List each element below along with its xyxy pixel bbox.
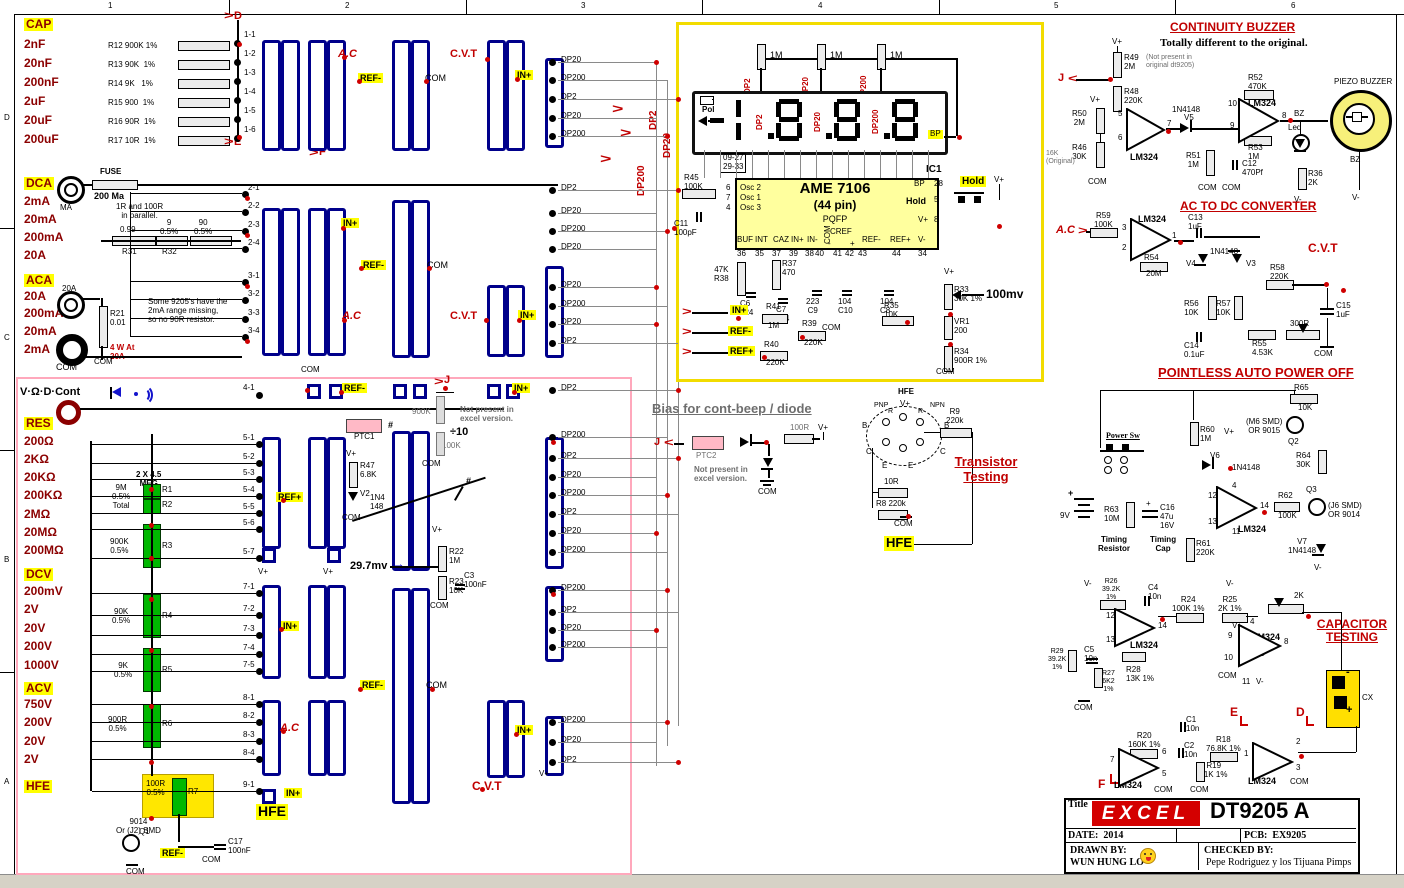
resistor-r7 [172,778,187,816]
sq-84 [262,789,276,804]
cp-231 [1074,498,1094,500]
lcd-segment [855,102,860,117]
disp-botn-2: 37 [772,250,781,259]
rv-175 [1096,108,1105,134]
ruler-col-3: 3 [581,2,585,11]
junction-dot [279,627,284,632]
mid-ptc1: PTC1 [354,433,374,442]
mid-t5-0: 5-1 [243,434,255,443]
disp-botn-8: 43 [858,250,867,259]
terminal-dot [242,246,249,253]
rv-182 [1206,150,1215,176]
cpv-212 [1200,332,1202,342]
tb-checked_name: Pepe Rodriguez y los Tijuana Pimps [1206,857,1351,868]
dp-terminal-dot [549,609,556,616]
cap-rs-0: R12 900K 1% [108,42,157,51]
dp-terminal-label: DP2 [561,756,577,765]
dp-wire [558,495,667,496]
trd-215 [1298,324,1308,333]
l1h-163 [924,432,940,433]
sq-60 [393,384,407,399]
lh-21 [101,240,241,242]
l1v-1 [466,0,467,14]
dp-terminal-dot [549,321,556,328]
lcd-segment [834,123,839,138]
cb-r53: R53 1M [1248,144,1263,162]
terminal-dot [256,510,263,517]
junction-dot [149,556,154,561]
dp-terminal-dot [549,511,556,518]
lcd-segment [895,117,915,122]
ct-p8: 8 [1284,638,1288,647]
l1v-177 [1100,134,1101,142]
disp-osc-1: 7 [726,194,730,203]
cb-r49n: (Not present in original dt9205) [1146,54,1194,70]
dp-terminal-label: DP20 [561,318,581,327]
dp-terminal-label: DP2 [561,384,577,393]
sym-gt: > [682,306,692,318]
ring-159 [882,438,890,446]
lh-115 [954,192,984,194]
lcd-segment [837,136,857,141]
lcd-segment [913,102,918,117]
common-com: COM [936,368,955,377]
ring-228 [1120,456,1128,464]
disp-r40: R40 [764,341,779,350]
dp-wire [558,742,656,743]
dp-terminal-label: DP20 [561,736,581,745]
tb-title: Title [1068,799,1088,810]
rh-12 [178,117,230,127]
dp-wire [558,213,656,214]
common-com: COM [202,856,221,865]
trd-148 [763,458,773,467]
section-dca: DCA [24,177,54,190]
lcd-pin-lead [880,150,881,178]
wire [92,704,256,705]
dca-rg-1: 20mA [24,213,57,226]
junction-dot [1306,614,1311,619]
ac-dc-title: AC TO DC CONVERTER [1180,200,1316,213]
mid-c3: C3 100nF [464,572,487,590]
disp-c10: 104 C10 [838,298,853,316]
mid-t7-3: 7-4 [243,644,255,653]
ring-227 [1104,456,1112,464]
l1v-286 [1198,842,1199,870]
l1h-221 [1100,390,1296,391]
dca-fv: 200 Ma [94,191,124,201]
bar-65 [308,437,327,549]
cpv-272 [1184,722,1186,732]
lcd-segment [884,133,890,139]
common-com: COM [1222,184,1241,193]
section-acv: ACV [24,682,53,695]
ct-r24: R24 100K 1% [1172,596,1204,614]
rv-210 [1234,296,1243,320]
bar-56 [506,285,525,357]
cap-rs-3: R15 900 1% [108,99,154,108]
tt-r10: 10R [884,478,899,487]
wire [92,791,256,792]
rv-22 [99,306,108,348]
lv-150 [768,470,770,478]
junction-dot [676,188,681,193]
junction-dot [515,77,520,82]
dp-wire [558,306,667,307]
disp-bot-5: CREF [830,228,852,237]
dp-wire [558,99,678,100]
terminal-dot [242,297,249,304]
common-com: COM [126,868,145,877]
apo-r65: R65 [1294,384,1309,393]
ladder-q1: Q1 [139,828,150,837]
terminal-dot [256,788,263,795]
l1h-278 [1302,612,1342,613]
l1v-285 [1240,828,1241,842]
dp-terminal-dot [549,549,556,556]
ring-161 [916,438,924,446]
cb-r48: R48 220K [1124,88,1143,106]
cp-206 [1228,250,1240,252]
transistor-q2 [1286,416,1304,434]
junction-dot [237,42,242,47]
dp-wire [558,287,656,288]
lv-33 [151,434,153,776]
cp-204 [1194,264,1206,266]
common-com: COM [1088,178,1107,187]
junction-dot [665,720,670,725]
aca-rg-2: 20mA [24,325,57,338]
l1v-280 [1356,726,1357,752]
dp-wire [558,630,656,631]
auto-power-off-title: POINTLESS AUTO POWER OFF [1158,366,1354,381]
apo-q2: Q2 [1288,438,1299,447]
jack-ma [57,176,85,204]
disp-pqfp: PQFP [800,214,870,224]
lcd-segment [736,123,741,140]
bar-82 [308,700,327,776]
dp-terminal-dot [549,210,556,217]
sym-gt: > [620,126,631,141]
ct-p10: 10 [1224,654,1233,663]
cp-260 [1078,700,1090,702]
bar-44 [392,40,411,151]
rh-168 [878,488,908,498]
ad-r56: R56 10K [1184,300,1199,318]
dp-wire [558,590,667,591]
junction-dot [245,233,250,238]
ct-p3: 3 [1296,764,1300,773]
common-inp: IN+ [730,305,748,315]
trl-135 [952,290,961,300]
transistor-q1 [122,834,140,852]
section-aca: ACA [24,274,54,287]
common-cvt: C.V.T [450,310,477,322]
rv-238 [1190,422,1199,446]
lv-24 [101,298,103,306]
junction-dot [149,487,154,492]
lcd-segment [892,123,897,138]
ct-e: E [1230,706,1238,719]
bar-72 [262,585,281,679]
dp-terminal-label: DP2 [561,337,577,346]
apo-r63: R63 10M [1104,506,1120,524]
lcd-pin-lead [816,150,817,178]
ruler-col-6: 6 [1291,2,1295,11]
lh-201 [1174,240,1194,242]
common-refm: REF- [361,260,386,270]
cb-r50: R50 2M [1072,110,1087,128]
rv-93 [438,576,447,600]
dp-terminal-label: DP2 [561,452,577,461]
junction-dot [665,134,670,139]
wire [92,722,256,723]
common-com: COM [758,488,777,497]
disp-r37: R37 470 [782,260,797,278]
hfe-jack-label: HFE [884,536,914,551]
terminal-dot [256,392,263,399]
junction-dot [676,456,681,461]
junction-dot [1262,510,1267,515]
cb-sub: Totally different to the original. [1160,37,1308,49]
continuity-buzzer-title: CONTINUITY BUZZER [1170,21,1295,34]
disp-botn-4: 38 [805,250,814,259]
ruler-row-c: C [4,334,10,343]
mid-mv: 29.7mv [350,560,387,572]
common-vm: V- [1084,580,1092,589]
wire [92,444,256,445]
lcd-segment [779,136,799,141]
ruler-col-2: 2 [345,2,349,11]
lh-143 [674,443,684,445]
lcd-dp-label: DP200 [872,110,881,134]
battery-icon [700,96,714,105]
terminal-dot [256,493,263,500]
hfe-socket-title: HFE [898,388,914,397]
lh-139 [692,332,728,334]
dp-terminal-dot [549,759,556,766]
cp-126 [812,294,822,296]
ptc2-body [692,436,724,450]
junction-dot [948,312,953,317]
rv-104 [877,44,886,70]
dcv-rg-4: 1000V [24,659,59,672]
dp-terminal-dot [549,739,556,746]
bar-81 [262,700,281,776]
ct-cx: CX [1362,694,1373,703]
tt-e: E [882,462,887,471]
winking-emoji [1140,848,1156,864]
res-rg-2: 20KΩ [24,471,56,484]
l1h-165 [912,544,972,545]
sq-71 [327,548,341,563]
dp-terminal-dot [549,187,556,194]
lv-101 [956,58,958,136]
dp-wire [558,390,678,391]
rv-242 [1186,538,1195,562]
dp-terminal-dot [549,474,556,481]
lh-202 [1204,236,1260,238]
wire [92,759,256,760]
disp-r41: R41 [766,303,781,312]
junction-dot [736,316,741,321]
trd-254 [1274,598,1284,607]
disp-botn-10: 34 [918,250,927,259]
cp-236 [1142,510,1158,512]
cp-232 [1078,504,1090,506]
junction-dot [1324,282,1329,287]
lvb-241 [1212,457,1214,469]
opamp-ic2b [1126,108,1166,152]
terminal-dot [256,555,263,562]
junction-dot [480,787,485,792]
junction-dot [357,79,362,84]
junction-dot [430,687,435,692]
dp-wire [558,136,667,137]
ad-r54v: 20M [1146,270,1162,279]
rv-120 [772,260,781,290]
sqb-226 [1122,444,1129,451]
ring-230 [1120,466,1128,474]
ct-p14: 14 [1158,622,1167,631]
cp-123 [778,298,788,300]
dp-terminal-label: DP200 [561,225,585,234]
disp-osc-0: 6 [726,184,730,193]
terminal-dot [234,59,241,66]
junction-dot [1166,129,1171,134]
cap-rs-4: R16 90R 1% [108,118,156,127]
rv-92 [438,546,447,572]
dp-terminal-dot [549,719,556,726]
l1h-281 [1298,752,1356,753]
rv-89 [349,462,358,488]
disp-p5: 5 [934,196,938,205]
dp-wire [558,762,678,763]
junction-dot [341,226,346,231]
wire [92,671,256,672]
junction-dot [245,339,250,344]
junction-dot [654,322,659,327]
lcd-pin-lead [864,150,865,178]
model-number: DT9205 A [1210,799,1309,824]
disp-botn-6: 41 [833,250,842,259]
lcd-pin-lead [912,150,913,178]
hold-switch-label: Hold [960,176,986,187]
dp-terminal-label: DP2 [561,184,577,193]
redh-265 [1240,724,1248,726]
apo-tr: Timing Resistor [1098,536,1130,554]
wire [130,336,242,337]
rv-172 [1113,52,1122,78]
common-ac: A.C [338,48,357,60]
disp-bot-10: V- [918,236,926,245]
bar-83 [327,700,346,776]
apo-q3t: (J6 SMD) OR 9014 [1328,502,1362,520]
ruler-row-d: D [4,114,10,123]
section-cap: CAP [24,18,53,31]
mid-t7-1: 7-2 [243,605,255,614]
mid-t5-3: 5-4 [243,486,255,495]
junction-dot [517,318,522,323]
common-com: COM [430,602,449,611]
tb-drawn_name: WUN HUNG LO [1070,857,1144,868]
disp-bot-7: + [850,240,855,249]
transistor-q3 [1308,498,1326,516]
sym-gt: > [682,346,692,358]
sym-plus: + [1346,704,1352,716]
ad-r55: R55 4.53K [1252,340,1273,358]
sqb2-262 [1332,676,1345,689]
aca-tm-2: 3-3 [248,309,260,318]
bias-np: Not present in excel version. [694,466,748,484]
cap-rs-1: R13 90K 1% [108,61,155,70]
cpv-114 [700,212,702,222]
rv-245 [1318,450,1327,474]
bar-73 [308,585,327,679]
dp-wire [558,458,678,459]
rv-235 [1126,502,1135,528]
dp-terminal-label: DP20 [561,471,581,480]
disp-c9: 223 C9 [806,298,819,316]
wire [92,741,256,742]
sqb-225 [1106,444,1113,451]
lh-100 [762,58,958,60]
dp-wire [558,62,656,63]
cpv-184 [1236,160,1238,170]
cb-p10: 10 [1228,100,1237,109]
mid-k900: 900K [412,408,431,417]
common-com: COM [824,225,833,244]
common-refm: REF- [360,680,385,690]
sq-62 [487,384,501,399]
dp-terminal-label: DP20 [561,243,581,252]
dp-terminal-label: DP20 [561,112,581,121]
lcd-dp-label: DP2 [756,114,765,130]
opamp-ic2d [1216,486,1258,530]
dp-terminal-dot [549,303,556,310]
bar-47 [506,40,525,151]
lcd-pin-lead [768,150,769,178]
lh-17 [138,184,558,186]
junction-dot [339,390,344,395]
dp-wire [558,118,656,119]
lcd-segment [776,102,781,117]
terminal-dot [256,668,263,675]
rh-11 [178,98,230,108]
cap-rg-3: 2uF [24,95,45,108]
ladder-r3v: 900K 0.5% [110,538,129,556]
junction-dot [1341,288,1346,293]
common-com: COM [422,460,441,469]
dp200-bus-label: DP200 [636,165,647,196]
junction-dot [764,440,769,445]
junction-dot [800,335,805,340]
bias-heading: Bias for cont-beep / diode [652,402,812,417]
disp-r39: R39 [802,320,817,329]
dp-terminal-label: DP2 [561,508,577,517]
terminal-dot [242,209,249,216]
bottom-bar [0,874,1404,888]
dp-terminal-dot [549,96,556,103]
dcv-rg-1: 2V [24,603,39,616]
rv-133 [944,316,953,340]
ct-r27: R27 6K2 1% [1102,670,1115,693]
cap-rg-0: 2nF [24,38,45,51]
junction-dot [149,704,154,709]
disp-pol: Pol [702,106,714,115]
lcd-pin-lead [848,150,849,178]
jack-20a [57,291,85,319]
